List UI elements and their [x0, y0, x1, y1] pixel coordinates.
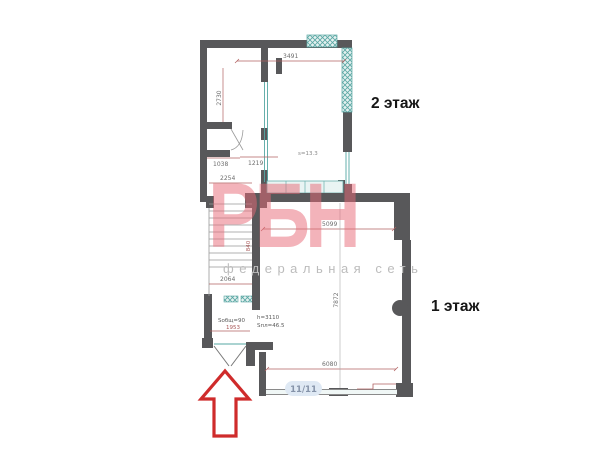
wc-wall-bottom	[207, 150, 230, 157]
dim-entry-width-text: 1953	[226, 325, 240, 331]
floor1-label: 1 этаж	[431, 298, 479, 316]
wc-door	[231, 129, 243, 150]
dim-room1-top-text: 5099	[322, 221, 337, 228]
entry-door-leaf-left	[214, 346, 229, 366]
dim-stairs-bottom-text: 2064	[220, 276, 235, 283]
vent-hatch-top	[307, 35, 337, 47]
floor-plan-drawing: 3491 2730 1038 1219 2254 2064 840 1953 5…	[0, 0, 612, 465]
wall-stairs-right	[252, 194, 260, 310]
dim-room1-right-text: 7872	[333, 292, 340, 307]
dim-stairs-side-text: 840	[246, 240, 252, 251]
entrance-door	[214, 346, 246, 366]
column-round	[392, 300, 408, 316]
window-badge-text: 11/11	[290, 385, 317, 395]
wall-right-mid	[343, 112, 352, 152]
entry-jamb-left	[202, 338, 213, 348]
entry-door-leaf-right	[231, 346, 246, 366]
inner-wall-top	[261, 48, 268, 82]
floor2-label: 2 этаж	[371, 95, 419, 113]
wall-middle-horizontal	[245, 193, 410, 202]
door-jamb-mark	[276, 58, 282, 74]
dim-room1-bottom-text: 6080	[322, 361, 337, 368]
window-step-line	[357, 384, 396, 389]
wall-corner-bottom-right	[396, 383, 413, 397]
dim-wc-left-text: 1038	[213, 161, 228, 168]
wall-left-lobby	[204, 294, 212, 340]
dim-stairs-top-text: 2254	[220, 175, 235, 182]
glazing-lines	[214, 82, 349, 344]
entry-area-text: Sобщ=90	[218, 318, 246, 324]
wall-left-corner	[206, 196, 214, 208]
hall-area-text: Sпл=46.5	[257, 323, 285, 329]
lower-block-walls	[202, 193, 413, 397]
dim-top-text: 3491	[283, 53, 298, 60]
vent-hatch-right	[342, 48, 352, 112]
window-badge: 11/11	[285, 381, 322, 396]
entrance-arrow	[201, 371, 249, 436]
lobby-wall-vertical	[246, 342, 255, 366]
wall-right-step	[394, 202, 410, 240]
dim-left-vertical-text: 2730	[216, 90, 223, 105]
floor-plan-image: 3491 2730 1038 1219 2254 2064 840 1953 5…	[0, 0, 612, 465]
hatched-shafts	[224, 35, 352, 302]
wall-left-room1	[259, 352, 266, 396]
wall-left-upper	[200, 40, 207, 202]
floor2-area-text: s=13.3	[298, 151, 318, 157]
dim-wc-right-text: 1219	[248, 160, 263, 167]
hall-height-text: h=3110	[257, 315, 280, 321]
sill-hatch-left	[224, 296, 238, 302]
glazing-band-bottom	[267, 181, 343, 193]
wc-wall-top	[207, 122, 232, 129]
